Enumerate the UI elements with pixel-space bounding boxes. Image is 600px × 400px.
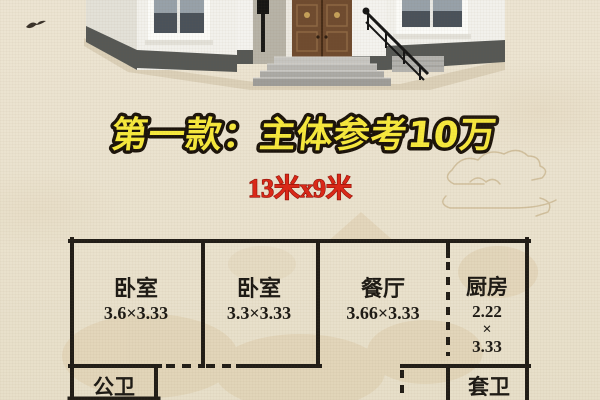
page-title: 第一款：主体参考10万 — [110, 114, 499, 156]
room-dims: × — [482, 321, 491, 338]
room-dims: 3.3×3.33 — [227, 303, 291, 323]
size-label: 13米x9米 — [248, 174, 352, 203]
room-label: 厨房 — [466, 275, 508, 299]
room-dims: 3.66×3.33 — [346, 303, 419, 323]
room-label: 套卫 — [468, 375, 510, 399]
room-dims: 2.22 — [472, 302, 502, 321]
room-dims: 3.33 — [472, 337, 502, 356]
room-label: 公卫 — [93, 375, 135, 399]
cloud-motif — [443, 150, 556, 216]
room-label: 餐厅 — [361, 276, 405, 301]
poster: 第一款：主体参考10万 13米x9米 — [0, 0, 600, 400]
bird-icon — [26, 21, 46, 28]
room-dims: 3.6×3.33 — [104, 303, 168, 323]
room-label: 卧室 — [114, 276, 158, 301]
room-label: 卧室 — [237, 276, 281, 301]
